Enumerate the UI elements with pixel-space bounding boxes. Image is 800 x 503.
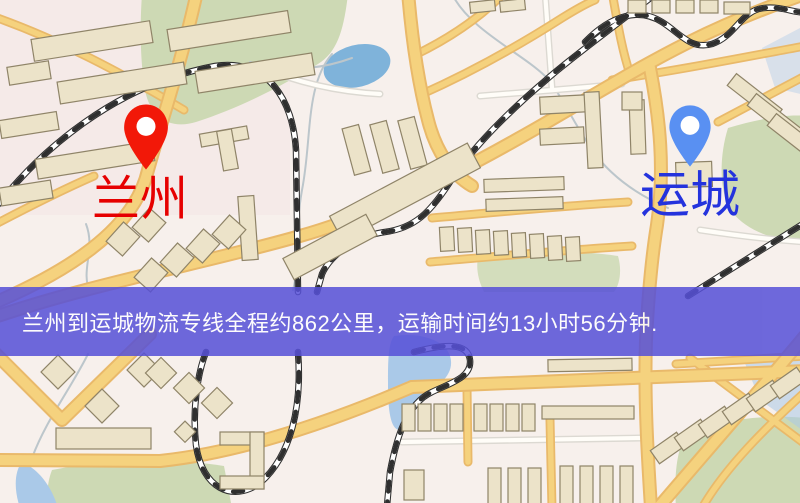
route-info-banner: 兰州到运城物流专线全程约862公里，运输时间约13小时56分钟. — [0, 287, 800, 356]
route-info-text: 兰州到运城物流专线全程约862公里，运输时间约13小时56分钟. — [0, 306, 658, 338]
map-canvas — [0, 0, 800, 503]
origin-pin-icon — [121, 102, 171, 172]
map-view[interactable]: 兰州 运城 兰州到运城物流专线全程约862公里，运输时间约13小时56分钟. — [0, 0, 800, 503]
origin-label: 兰州 — [92, 176, 188, 224]
destination-label: 运城 — [640, 170, 740, 220]
destination-pin-icon — [664, 103, 716, 169]
